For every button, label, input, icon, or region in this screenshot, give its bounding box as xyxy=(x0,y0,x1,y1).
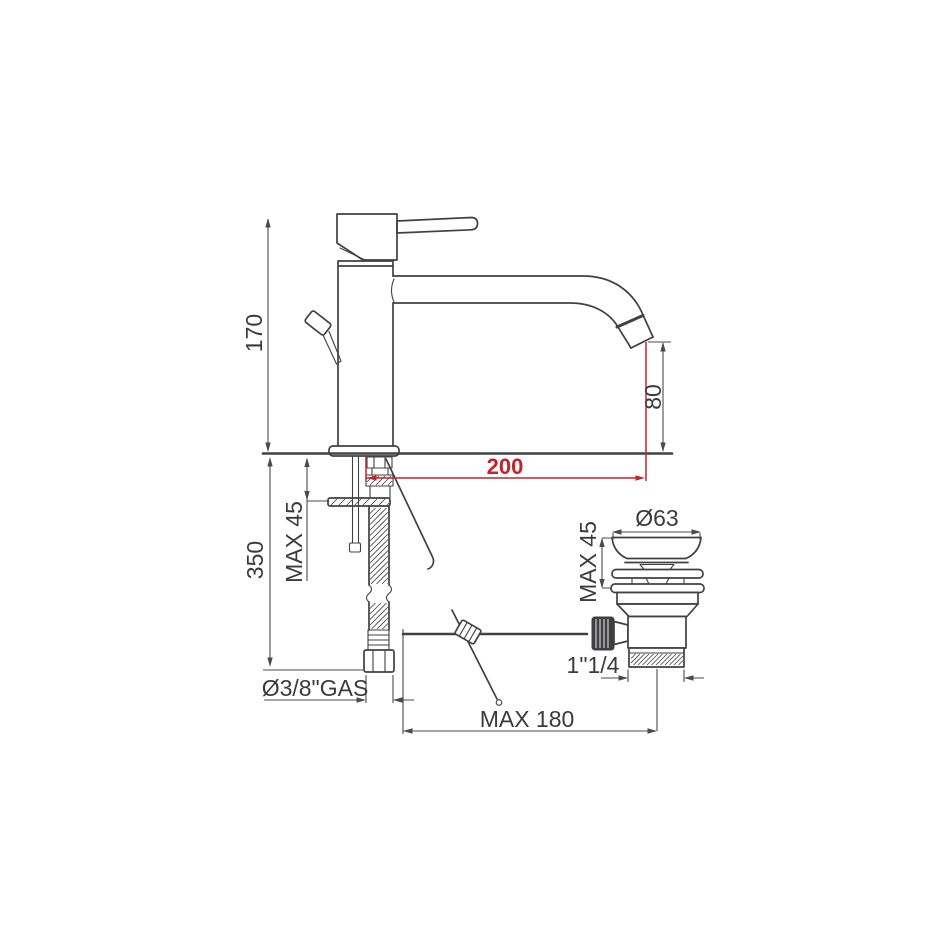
lever-handle xyxy=(397,218,478,234)
dim-label-rod-length: MAX 180 xyxy=(480,706,575,732)
waste-body xyxy=(628,617,686,649)
diagonal-rod xyxy=(452,610,497,699)
dim-label-spout-height: 80 xyxy=(640,384,666,410)
dim-label-supply-connection: Ø3/8"GAS xyxy=(262,675,369,701)
drain-assembly xyxy=(592,538,704,668)
drain-knob xyxy=(592,617,628,650)
waste-flange xyxy=(612,538,701,563)
dim-label-waste-deck-max: MAX 45 xyxy=(575,521,601,603)
aerator-line xyxy=(617,316,643,328)
waste-top-ring xyxy=(612,570,703,579)
dim-label-waste-thread: 1"1/4 xyxy=(567,652,620,678)
handle-cap xyxy=(337,214,397,260)
spout xyxy=(393,276,653,337)
pipe-hatch-lower xyxy=(370,603,388,629)
supply-pipe xyxy=(369,506,389,585)
pull-rod-knob xyxy=(304,310,341,364)
waste-seal-ring xyxy=(611,584,704,593)
faucet-outline xyxy=(304,214,653,456)
pipe-hatch-upper xyxy=(370,508,388,584)
dim-label-under-counter-depth: 350 xyxy=(242,541,268,579)
dim-label-deck-thickness: MAX 45 xyxy=(281,501,307,583)
under-counter-assembly xyxy=(328,456,394,672)
dim-label-spout-reach: 200 xyxy=(487,454,524,479)
plate-hatch xyxy=(331,499,389,505)
dim-label-overall-height: 170 xyxy=(241,314,267,352)
drawing-canvas: 170 350 MAX 45 80 200 Ø3/8"GAS Ø63 MAX 4… xyxy=(0,0,950,950)
dim-label-waste-flange-diameter: Ø63 xyxy=(635,505,678,531)
supply-nut xyxy=(364,650,394,672)
pop-up-rod-linkage xyxy=(386,459,587,705)
faucet-technical-drawing: 170 350 MAX 45 80 200 Ø3/8"GAS Ø63 MAX 4… xyxy=(0,0,950,950)
faucet-body xyxy=(338,261,393,446)
